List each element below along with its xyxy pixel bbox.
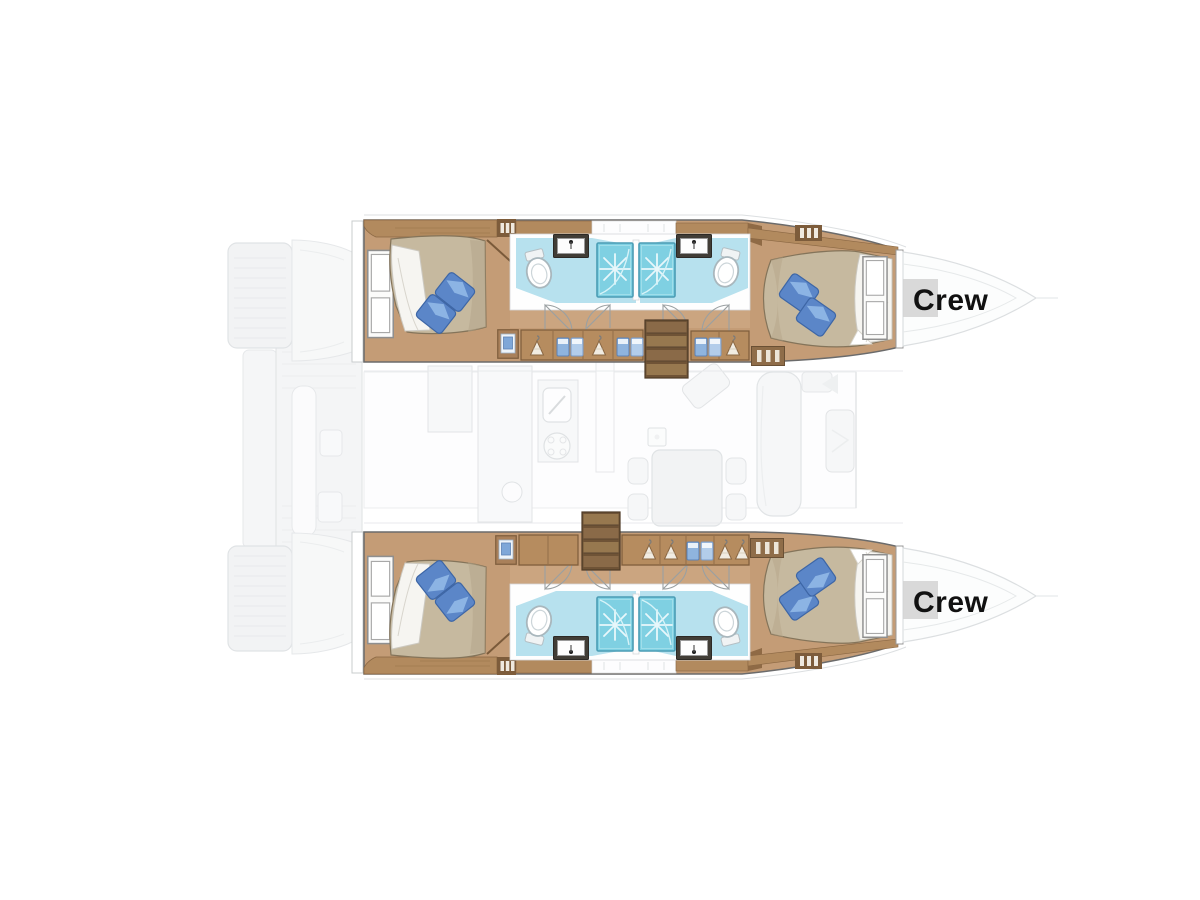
companionway-stairs: [645, 320, 688, 378]
yacht-layout-svg: Crew Crew: [0, 0, 1200, 900]
catamaran-layout-diagram: Crew Crew: [0, 0, 1200, 900]
aft-cockpit-ghost: [276, 332, 362, 566]
crew-label-lower: Crew: [903, 581, 989, 619]
stove-burner-icon: [544, 433, 570, 459]
salon-and-deck-ghost: [243, 332, 856, 566]
starboard-wardrobe-row: [496, 512, 784, 570]
dresser-icon: [752, 347, 785, 366]
crew-label-upper: Crew: [903, 279, 989, 317]
salon-divider-ghost: [596, 362, 614, 472]
plain-cabinet: [519, 535, 578, 565]
mast-step: [648, 428, 666, 446]
locker-cabinet: [498, 330, 519, 359]
sofa-ghost: [757, 372, 801, 516]
crew-label-text: Crew: [913, 284, 989, 317]
crew-label-text: Crew: [913, 586, 989, 619]
aft-crossbeam-ghost: [243, 350, 277, 548]
wardrobe-cabinet: [622, 535, 749, 565]
dresser-icon: [751, 539, 784, 558]
companionway-stairs: [582, 512, 620, 570]
locker-cabinet: [496, 536, 517, 565]
